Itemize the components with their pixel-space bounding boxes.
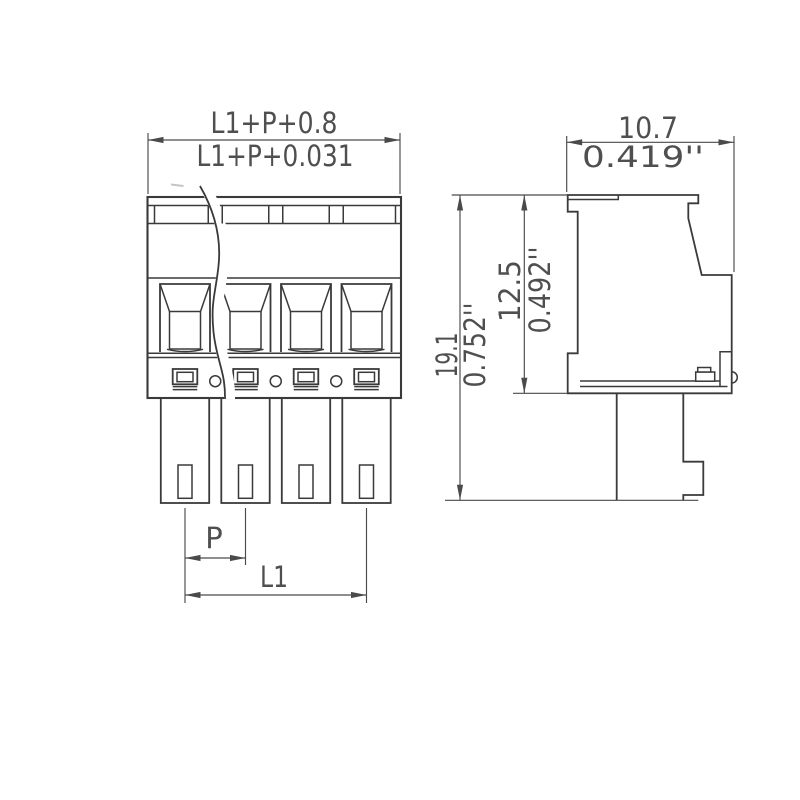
wire-entry-funnel [160, 284, 210, 352]
dim-pitch-label: P [205, 521, 223, 555]
dim-overall-height: 19.1 0.752'' [430, 195, 698, 500]
wire-entry-funnel [221, 284, 271, 352]
dim-overall-width-inch-label: L1+P+0.031 [197, 139, 354, 173]
wire-entry-funnels [160, 284, 392, 352]
dim-overall-width-mm-label: L1+P+0.8 [211, 106, 338, 140]
technical-drawing-page: L1+P+0.8 L1+P+0.031 P L1 10.7 0.419'' 19… [0, 0, 800, 800]
side-view-right-notch [720, 352, 732, 387]
test-hole [270, 376, 281, 387]
clamp-screw [173, 369, 198, 390]
clamp-screw [233, 369, 258, 390]
plug-legs [161, 398, 391, 503]
dim-housing-height-mm-label: 12.5 [493, 260, 527, 322]
dim-depth-inch-label: 0.419'' [582, 140, 704, 174]
clamp-screw [294, 369, 319, 390]
side-view-plug [617, 393, 704, 500]
plug-leg [342, 398, 390, 503]
wire-entry-funnel [281, 284, 331, 352]
test-hole [210, 376, 221, 387]
dim-pitch: P [185, 508, 246, 603]
technical-drawing-canvas: L1+P+0.8 L1+P+0.031 P L1 10.7 0.419'' 19… [0, 0, 800, 800]
dim-depth: 10.7 0.419'' [567, 111, 734, 272]
wire-entry-funnel [342, 284, 392, 352]
break-line-lead-in [171, 185, 184, 187]
test-hole [331, 376, 342, 387]
plug-leg [282, 398, 330, 503]
side-view-outline [568, 195, 732, 393]
front-view [148, 185, 402, 504]
dim-overall-height-inch-label: 0.752'' [458, 303, 492, 388]
clamp-contacts-row [173, 369, 379, 390]
plug-leg [221, 398, 269, 503]
plug-leg [161, 398, 209, 503]
side-view [568, 195, 738, 500]
side-view-clamp-detail [696, 368, 715, 382]
break-line [171, 185, 230, 400]
dim-length-label: L1 [260, 560, 288, 594]
dim-housing-height: 12.5 0.492'' [493, 195, 568, 393]
dim-overall-width: L1+P+0.8 L1+P+0.031 [148, 106, 400, 194]
latch-slot-dividers [269, 206, 344, 224]
front-view-housing [148, 197, 402, 398]
clamp-screw [354, 369, 379, 390]
dim-housing-height-inch-label: 0.492'' [523, 247, 557, 334]
